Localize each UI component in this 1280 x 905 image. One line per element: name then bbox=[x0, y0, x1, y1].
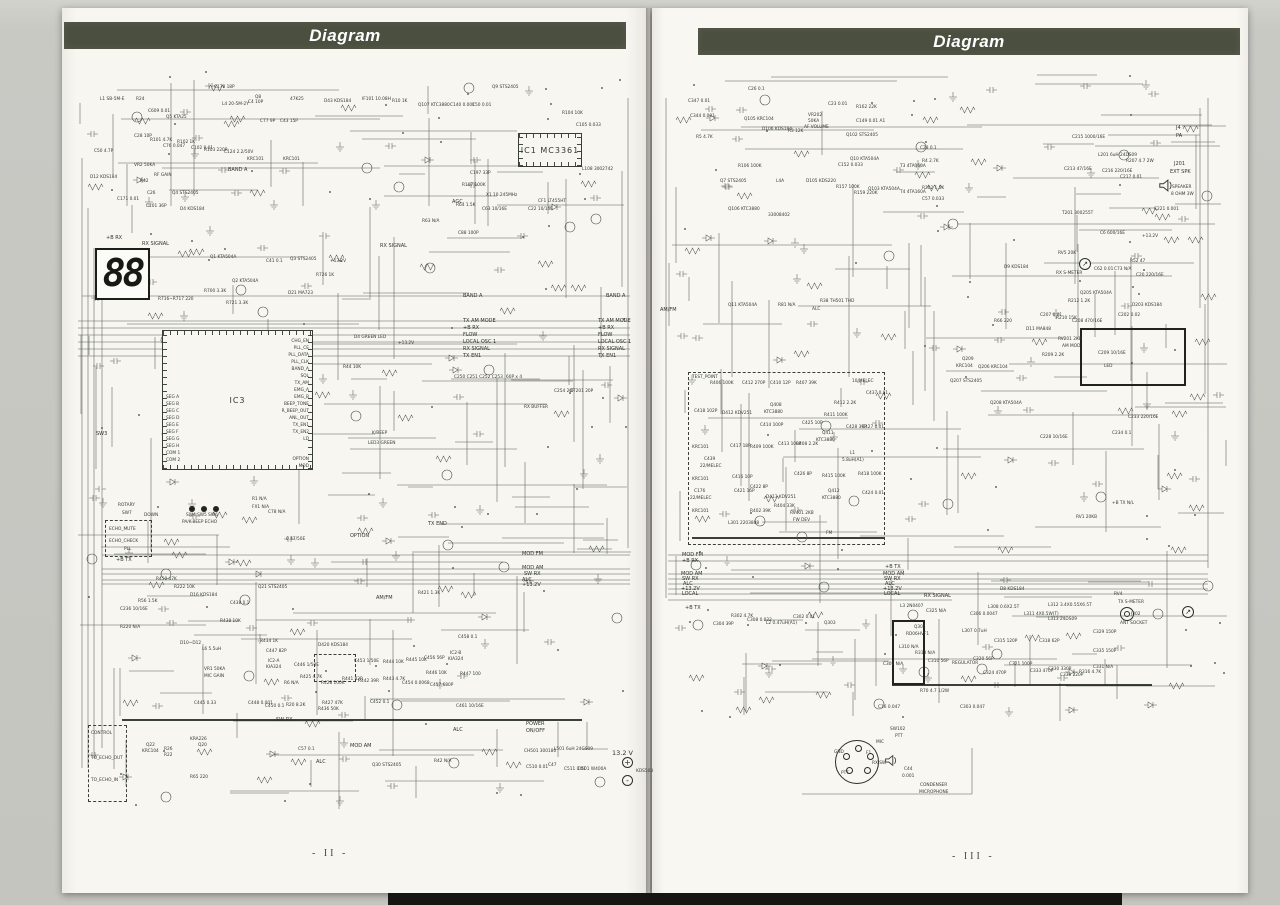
component-label: C171 0.01 bbox=[117, 198, 139, 203]
component-label: 0.001 bbox=[902, 775, 914, 780]
component-label: Q206 KRC104 bbox=[978, 366, 1008, 371]
component-label: R101 4.7K bbox=[150, 139, 172, 144]
component-label: TX END bbox=[428, 522, 447, 528]
rx-meter-icon: ↗ bbox=[1079, 258, 1091, 270]
component-label: RX SIGNAL bbox=[924, 594, 951, 600]
component-label: CT201 20P bbox=[570, 390, 593, 395]
page-number: - III - bbox=[952, 851, 995, 862]
component-label: L307 0.7uH bbox=[962, 630, 987, 635]
component-label: C6 600/16E bbox=[1100, 232, 1125, 237]
component-label: BAND A bbox=[606, 294, 625, 300]
component-label: +13.2V bbox=[522, 583, 541, 589]
component-label: C208 470/16E bbox=[1072, 320, 1102, 325]
component-label: SW3 bbox=[96, 432, 107, 438]
component-label: KRC101 bbox=[692, 478, 709, 483]
component-label: J302 bbox=[1131, 613, 1140, 618]
component-label: R42 N/A bbox=[434, 760, 451, 765]
component-label: R65 220 bbox=[190, 776, 208, 781]
component-label: KTC3880 bbox=[764, 411, 783, 416]
component-label: R409 100K bbox=[750, 446, 774, 451]
component-label: MICROPHONE bbox=[919, 791, 948, 796]
component-label: C427 0.01 bbox=[862, 426, 884, 431]
component-label: C310 56P bbox=[928, 660, 949, 665]
component-label: C331 N/A bbox=[1093, 666, 1113, 671]
component-label: Q2 KTA504A bbox=[232, 280, 258, 285]
component-label: LED bbox=[1104, 365, 1112, 370]
component-label: R406 100K bbox=[710, 382, 734, 387]
page-title: Diagram bbox=[933, 32, 1005, 52]
component-label: C344 0.001 bbox=[690, 115, 715, 120]
page-right: Diagram - III - ↗↗C26 0.1C347 0.01C344 0… bbox=[652, 8, 1248, 893]
component-label: AM/FM bbox=[376, 596, 393, 602]
component-label: 22/MELEC bbox=[700, 465, 721, 470]
component-label: R442 39R bbox=[358, 680, 379, 685]
ic-part-number: IC1 MC3361 bbox=[519, 134, 581, 166]
component-label: ALC bbox=[453, 728, 463, 734]
component-label: RV5 20K bbox=[1058, 252, 1076, 257]
component-label: D11 MA848 bbox=[1026, 328, 1051, 333]
component-label: Q1 KTA504A bbox=[210, 256, 236, 261]
component-label: R425 4.7K bbox=[300, 676, 322, 681]
component-label: MIC bbox=[876, 741, 884, 746]
component-label: R81 N/A bbox=[778, 304, 795, 309]
component-label: D12 KDS184 bbox=[90, 176, 117, 181]
component-label: C324 470P bbox=[983, 672, 1006, 677]
component-label: C63 10/16E bbox=[482, 208, 507, 213]
ic1-mc3361: IC1 MC3361 bbox=[518, 133, 582, 167]
component-label: KIA324 bbox=[266, 666, 281, 671]
component-label: +B RX bbox=[598, 326, 614, 332]
component-label: SW7 bbox=[122, 512, 132, 517]
component-label: 47K25 bbox=[290, 98, 304, 103]
component-label: COM 2 bbox=[166, 459, 180, 464]
component-label: GND bbox=[834, 751, 844, 756]
component-label: R407 39K bbox=[796, 382, 817, 387]
component-label: C457 680P bbox=[430, 684, 453, 689]
component-label: PLL_CE bbox=[294, 347, 309, 352]
component-label: L2 0.47uH(A1) bbox=[766, 622, 797, 627]
component-label: C215 1000/16E bbox=[1072, 136, 1105, 141]
component-label: C57 0.033 bbox=[922, 198, 944, 203]
component-label: Q4 STS2405 bbox=[172, 192, 199, 197]
component-label: FM bbox=[826, 532, 832, 537]
component-label: C57 0.1 bbox=[298, 748, 315, 753]
component-label: Q22 bbox=[146, 744, 155, 749]
component-label: Q412 bbox=[828, 490, 840, 495]
component-label: SQL bbox=[300, 375, 309, 380]
component-label: Q208 KTA504A bbox=[990, 402, 1022, 407]
component-label: J201 bbox=[1174, 162, 1185, 168]
component-label: L1 SB-5M-E bbox=[100, 98, 124, 103]
component-label: R22 bbox=[164, 754, 172, 759]
switch-pad bbox=[201, 506, 207, 512]
component-label: C26 0.1 bbox=[748, 88, 765, 93]
component-label: R721 3.3K bbox=[226, 302, 248, 307]
component-label: C88 100P bbox=[458, 232, 479, 237]
component-label: D420 KDS184 bbox=[318, 644, 348, 649]
component-label: +B RX bbox=[682, 559, 698, 565]
component-label: SEG F bbox=[166, 431, 179, 436]
component-label: PLL bbox=[124, 548, 131, 553]
component-label: Q205 KTA504A bbox=[1080, 292, 1112, 297]
component-label: R716~R717 220 bbox=[158, 298, 194, 303]
component-label: C50 4.7P bbox=[94, 150, 113, 155]
page-header: Diagram bbox=[698, 28, 1240, 55]
component-label: R446 10K bbox=[426, 672, 447, 677]
component-label: ECHO_CHECK bbox=[109, 540, 138, 545]
component-label: R415 100K bbox=[822, 475, 846, 480]
component-label: LD bbox=[303, 438, 309, 443]
component-label: ROTARY bbox=[118, 504, 135, 509]
component-label: R434 1K bbox=[260, 640, 278, 645]
component-label: RV401 2KB bbox=[790, 512, 814, 517]
component-label: +B TX bbox=[116, 558, 132, 564]
component-label: +13.2V bbox=[330, 260, 346, 265]
component-label: R313 N/A bbox=[915, 652, 935, 657]
component-label: RD06HVF1 bbox=[906, 633, 929, 638]
component-label: C458 0.1 bbox=[458, 636, 477, 641]
component-label: 22/MELEC bbox=[690, 497, 711, 502]
component-label: TX_EN2 bbox=[293, 431, 309, 436]
component-label: C250 C251 C252 C253 bbox=[454, 376, 503, 381]
component-label: Q30 STS2405 bbox=[372, 764, 401, 769]
component-label: TO_ECHO_OUT bbox=[91, 757, 123, 762]
component-label: R3 12K bbox=[788, 130, 803, 135]
component-label: KRA226 bbox=[190, 738, 207, 743]
component-label: D105 KDS220 bbox=[806, 180, 836, 185]
component-label: RV201 2KB bbox=[1058, 338, 1082, 343]
component-label: AF VOLUME bbox=[804, 126, 829, 131]
component-label: R444 10K bbox=[383, 661, 404, 666]
component-label: +B RX bbox=[106, 236, 122, 242]
component-label: D413 KDV251 bbox=[766, 496, 796, 501]
component-label: C422 8P bbox=[750, 486, 768, 491]
component-label: BAND A bbox=[228, 168, 247, 174]
component-label: MOD FM bbox=[522, 552, 543, 558]
component-label: 60P x 4 bbox=[506, 376, 522, 381]
component-label: VR2 50KA bbox=[134, 164, 155, 169]
component-label: +B TX bbox=[685, 606, 701, 612]
component-label: AM/FM bbox=[660, 308, 677, 314]
component-label: C426 8P bbox=[794, 473, 812, 478]
component-label: C452 0.1 bbox=[370, 701, 389, 706]
component-label: C16 0.047 bbox=[878, 706, 900, 711]
component-label: KRC101 bbox=[692, 446, 709, 451]
connector-pin bbox=[864, 767, 871, 774]
component-label: L310 N/A bbox=[899, 646, 919, 651]
component-label: C28 0.1 bbox=[920, 147, 937, 152]
seven-segment-display: 88 bbox=[95, 248, 150, 300]
component-label: IC2-A bbox=[268, 660, 279, 665]
component-label: C418 102P bbox=[694, 410, 717, 415]
component-label: OPTION bbox=[350, 534, 369, 540]
component-label: DOWN bbox=[144, 514, 158, 519]
component-label: C62 0.01 bbox=[1094, 268, 1113, 273]
component-label: C330 330P bbox=[1048, 668, 1071, 673]
component-label: C202 0.02 bbox=[1118, 314, 1140, 319]
component-label: L201 6uH 24DS09 bbox=[1098, 154, 1137, 159]
component-label: R38 TH501 THD bbox=[820, 300, 854, 305]
component-label: R412 2.2K bbox=[834, 402, 856, 407]
component-label: ON/OFF bbox=[526, 729, 545, 735]
component-label: +B TX bbox=[885, 565, 901, 571]
component-label: L501 6uH 24GS09 bbox=[554, 748, 593, 753]
component-label: TX AM MODE bbox=[463, 319, 496, 325]
component-label: R404 33K bbox=[774, 505, 795, 510]
component-label: ANT SOCKET bbox=[1120, 622, 1147, 627]
component-label: PTT bbox=[841, 772, 849, 777]
component-label: IC2-B bbox=[450, 652, 461, 657]
page-header: Diagram bbox=[64, 22, 626, 49]
component-label: C437 0.01 bbox=[866, 392, 888, 397]
mod-stage-box bbox=[1080, 328, 1186, 386]
component-label: FLOW bbox=[463, 333, 477, 339]
component-label: LOCAL OSC 1 bbox=[463, 340, 496, 346]
component-label: R63 N/A bbox=[422, 220, 439, 225]
component-label: RF GAIN bbox=[154, 174, 172, 179]
component-label: KRC104 bbox=[142, 750, 159, 755]
component-label: +13.2V bbox=[1142, 235, 1158, 240]
component-label: C461 10/16E bbox=[456, 705, 484, 710]
component-label: R209 2.2K bbox=[1042, 354, 1064, 359]
component-label: C221 0.001 bbox=[1154, 208, 1179, 213]
component-label: 13.2 V bbox=[612, 750, 633, 757]
component-label: EMG_B bbox=[294, 396, 309, 401]
component-label: R162 22K bbox=[856, 106, 877, 111]
scanned-schematic-spread: { "colors":{"header_bar":"#4b4f40","page… bbox=[0, 0, 1280, 905]
component-label: R6 N/A bbox=[284, 682, 299, 687]
component-label: Q9 STS2405 bbox=[492, 86, 519, 91]
component-label: D412 KDV251 bbox=[722, 412, 752, 417]
component-label: ANL_OUT bbox=[289, 417, 309, 422]
component-label: C417 18P bbox=[730, 445, 751, 450]
component-label: C424 0.01 bbox=[862, 492, 884, 497]
component-label: AGC bbox=[452, 200, 463, 206]
page-title: Diagram bbox=[309, 26, 381, 46]
component-label: BEEP_TONE bbox=[284, 403, 309, 408]
component-label: C425 10P bbox=[802, 422, 823, 427]
battery-minus-terminal: - bbox=[622, 775, 633, 786]
component-label: Q209 bbox=[962, 358, 974, 363]
component-label: C609 0.01 bbox=[148, 110, 170, 115]
component-label: 8 OHM 3W bbox=[1171, 193, 1194, 198]
component-label: RX S-METER bbox=[1056, 272, 1082, 277]
component-label: TX EN1 bbox=[463, 354, 481, 360]
component-label: R26 bbox=[164, 748, 172, 753]
component-label: C321 100P bbox=[1009, 663, 1032, 668]
component-label: RX SIGNAL bbox=[598, 347, 625, 353]
component-label: C329 150P bbox=[1093, 631, 1116, 636]
component-label: L4A bbox=[776, 180, 784, 185]
component-label: IF101 10.08H bbox=[362, 98, 391, 103]
component-label: RX SIGNAL bbox=[142, 242, 169, 248]
component-label: Q411 bbox=[822, 432, 834, 437]
component-label: ECHO_MUTE bbox=[109, 528, 136, 533]
component-label: D4 GREEN LED bbox=[354, 336, 386, 341]
page-left: Diagram - II - 88IC3IC1 MC3361+-L1 SB-5M… bbox=[62, 8, 650, 893]
component-label: Q105 KRC104 bbox=[744, 118, 774, 123]
component-label: RV4 bbox=[1114, 593, 1122, 598]
component-label: C101 36P bbox=[146, 205, 167, 210]
component-label: L313 24DS09 bbox=[1048, 618, 1077, 623]
component-label: FX1 N/A bbox=[252, 506, 269, 511]
component-label: T201 300255T bbox=[1062, 212, 1093, 217]
component-label: C73 N/A bbox=[1114, 268, 1131, 273]
component-label: L3 2N0407 bbox=[900, 605, 923, 610]
component-label: C23 0.01 bbox=[828, 103, 847, 108]
component-label: C302 0.01 bbox=[793, 616, 815, 621]
component-label: C176 bbox=[694, 490, 705, 495]
component-label: C438 0.1 bbox=[230, 602, 249, 607]
component-label: C511 0.01 bbox=[564, 768, 586, 773]
component-label: C318 62P bbox=[1039, 640, 1060, 645]
component-label: SEG G bbox=[166, 438, 179, 443]
component-label: TX_EN1 bbox=[293, 424, 309, 429]
component-label: D4 KDS184 bbox=[180, 208, 204, 213]
component-label: C26 bbox=[147, 192, 155, 197]
component-label: RX SW bbox=[872, 762, 886, 767]
component-label: C325 N/A bbox=[926, 610, 946, 615]
component-label: R66 220 bbox=[994, 320, 1012, 325]
scan-bottom-bar bbox=[388, 893, 1122, 905]
component-label: R408 2.2K bbox=[796, 443, 818, 448]
component-label: SEG C bbox=[166, 410, 179, 415]
component-label: T4 4TA160A bbox=[900, 191, 926, 196]
component-label: R104 10K bbox=[562, 112, 583, 117]
component-label: C20 220/16E bbox=[1136, 274, 1164, 279]
component-label: KRC101 bbox=[692, 510, 709, 515]
component-label: +B TX N/L bbox=[1112, 502, 1134, 507]
component-label: C152 0.033 bbox=[838, 164, 863, 169]
component-label: J4 bbox=[1176, 126, 1181, 132]
component-label: R70 4.7 1/2W bbox=[920, 690, 949, 695]
component-label: TX AM MODE bbox=[598, 319, 631, 325]
component-label: FLOW bbox=[598, 333, 612, 339]
component-label: PLL_DATA bbox=[288, 354, 309, 359]
component-label: KRC101 bbox=[247, 158, 264, 163]
component-label: L1 bbox=[850, 452, 855, 457]
component-label: R418 100K bbox=[858, 473, 882, 478]
component-label: Q103 KTA504A bbox=[868, 188, 900, 193]
component-label: R52 47 bbox=[1130, 260, 1145, 265]
component-label: SPEAKER bbox=[1172, 186, 1192, 191]
component-label: Q8 bbox=[255, 96, 261, 101]
component-label: +B RX bbox=[463, 326, 479, 332]
component-label: C178 18P bbox=[214, 86, 235, 91]
page-number: - II - bbox=[312, 848, 348, 859]
component-label: C453 1/50E bbox=[354, 660, 379, 665]
component-label: C335 150P bbox=[1093, 650, 1116, 655]
component-label: C22 10/16E bbox=[528, 208, 553, 213]
component-label: ALC bbox=[812, 308, 820, 313]
component-label: BAND_A bbox=[292, 368, 310, 373]
component-label: VR1 50KA bbox=[204, 668, 225, 673]
component-label: BAND A bbox=[463, 294, 482, 300]
component-label: 5.8uH(A1) bbox=[842, 459, 864, 464]
component-label: C456 56P bbox=[424, 657, 445, 662]
component-label: C445 0.33 bbox=[194, 702, 216, 707]
component-label: TX_AM bbox=[295, 382, 309, 387]
component-label: KTC3880 bbox=[816, 439, 835, 444]
component-label: SW102 bbox=[890, 728, 905, 733]
component-label: L108 3002742 bbox=[582, 168, 613, 173]
component-label: Q7 STS2405 bbox=[720, 180, 747, 185]
connector-pin bbox=[843, 753, 850, 760]
component-label: CONDENSER bbox=[920, 784, 947, 789]
component-label: R436 50K bbox=[318, 708, 339, 713]
component-label: RX SIGNAL bbox=[380, 244, 407, 250]
component-label: SW4 SW5 SW6 bbox=[186, 514, 218, 519]
component-label: D203 KDS184 bbox=[1132, 304, 1162, 309]
component-label: R157 100K bbox=[836, 186, 860, 191]
component-label: 33008402 bbox=[768, 214, 790, 219]
component-label: RX SIGNAL bbox=[463, 347, 490, 353]
component-label: KRC104 bbox=[956, 365, 973, 370]
component-label: C416 10P bbox=[732, 476, 753, 481]
component-label: C306 0.0047 bbox=[970, 613, 998, 618]
component-label: R212 1.2K bbox=[1068, 300, 1090, 305]
component-label: R450 47K bbox=[156, 578, 177, 583]
component-label: SEG H bbox=[166, 445, 179, 450]
component-label: ALC bbox=[316, 760, 326, 766]
component-label: LED3 GREEN bbox=[368, 442, 395, 447]
component-label: Q21 STS2405 bbox=[258, 586, 287, 591]
component-label: Q11 KTA504A bbox=[728, 304, 757, 309]
component-label: RX BUFFER bbox=[524, 406, 548, 411]
component-label: T3 4TA160A bbox=[900, 165, 926, 170]
component-label: R107 100K bbox=[462, 184, 486, 189]
component-label: KRC101 bbox=[283, 158, 300, 163]
component-label: R427 47K bbox=[322, 702, 343, 707]
component-label: 0.47/50E bbox=[286, 538, 305, 543]
component-label: C439 bbox=[704, 458, 715, 463]
microphone-icon bbox=[884, 754, 900, 767]
component-label: C448 0.001 bbox=[248, 702, 273, 707]
component-label: C447 82P bbox=[266, 650, 287, 655]
component-label: R_BEEP_OUT bbox=[282, 410, 309, 415]
component-label: R102 1K bbox=[177, 141, 195, 146]
component-label: REGULATOR bbox=[952, 662, 978, 667]
component-label: R44 10K bbox=[343, 366, 361, 371]
component-label: R56 1.5K bbox=[138, 600, 157, 605]
component-label: PLL_CLK bbox=[291, 361, 309, 366]
component-label: D10~D12 bbox=[180, 642, 201, 647]
component-label: 10/MELEC bbox=[852, 380, 873, 385]
component-label: CONTROL bbox=[91, 732, 112, 737]
component-label: CF1 LT455HT bbox=[538, 200, 566, 205]
component-label: TX S-METER bbox=[1118, 601, 1144, 606]
component-label: R220 N/A bbox=[120, 626, 140, 631]
component-label: AM MOD bbox=[1062, 345, 1080, 350]
component-label: R10 1K bbox=[392, 100, 407, 105]
component-label: R726 1K bbox=[316, 274, 334, 279]
component-label: X1 10.245MHz bbox=[486, 194, 517, 199]
component-label: PTT bbox=[895, 735, 903, 740]
component-label: Q102 STS2405 bbox=[846, 134, 878, 139]
component-label: VR202 bbox=[808, 114, 822, 119]
component-label: C4 10P bbox=[248, 101, 263, 106]
component-label: Q20 bbox=[198, 744, 207, 749]
component-label: C47 bbox=[548, 764, 556, 769]
component-label: R316 4.7K bbox=[1079, 671, 1101, 676]
component-label: L4 20-5M-2Y bbox=[222, 103, 249, 108]
component-label: R438 10K bbox=[220, 620, 241, 625]
component-label: Q107 KTC3880 bbox=[418, 104, 450, 109]
component-label: KTC3880 bbox=[822, 497, 841, 502]
component-label: C303 0.047 bbox=[960, 706, 985, 711]
component-label: C149 0.01 A1 bbox=[856, 120, 885, 125]
component-label: KIA324 bbox=[448, 658, 463, 663]
